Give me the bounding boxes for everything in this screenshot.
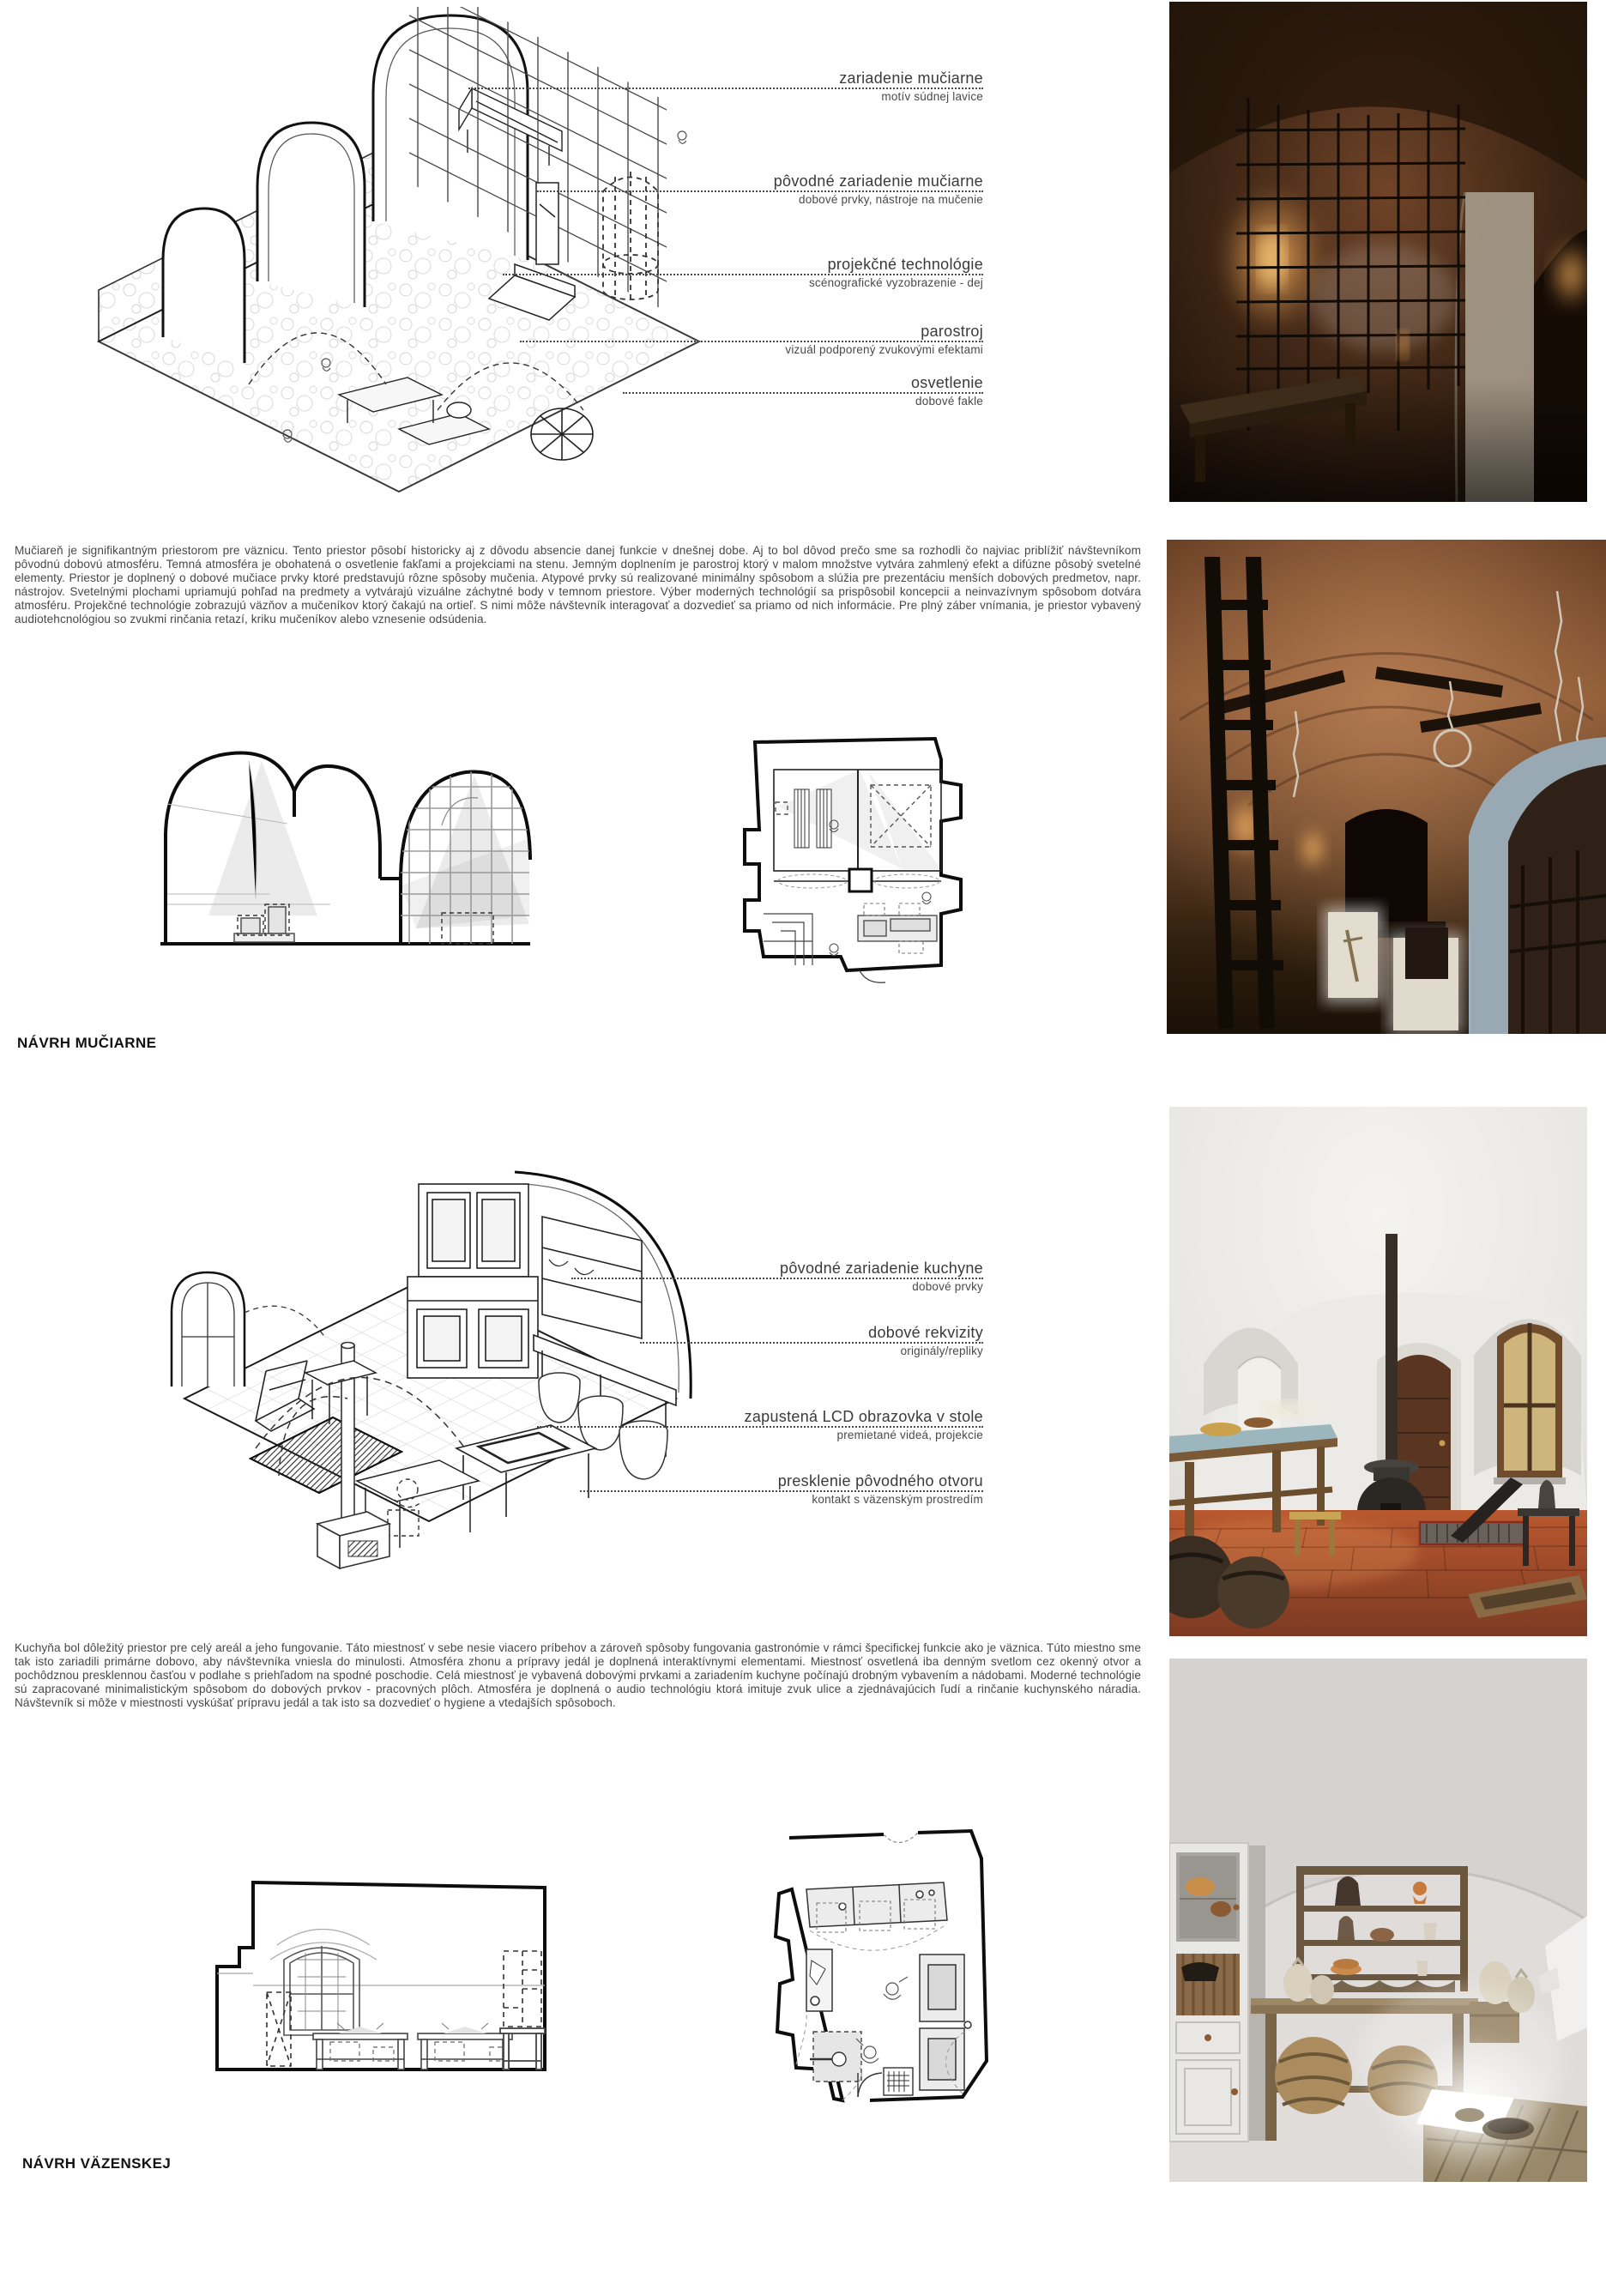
callout-leader-line <box>537 190 983 192</box>
callout-subtitle: vizuál podporený zvukovými efektami <box>520 344 983 356</box>
callout-title: pôvodné zariadenie mučiarne <box>537 173 983 190</box>
callout-leader-line <box>520 340 983 342</box>
callout-original-torture-equipment: pôvodné zariadenie mučiarne dobové prvky… <box>537 173 983 206</box>
callout-subtitle: dobové fakle <box>623 396 983 408</box>
callout-leader-line <box>503 273 983 275</box>
callout-leader-line <box>571 1277 983 1279</box>
callout-subtitle: premietané videá, projekcie <box>537 1429 983 1441</box>
callout-leader-line <box>537 1425 983 1428</box>
callout-steam-machine: parostroj vizuál podporený zvukovými efe… <box>520 323 983 356</box>
callout-title: dobové rekvizity <box>640 1325 983 1341</box>
callout-glazed-opening: presklenie pôvodného otvoru kontakt s vä… <box>580 1473 983 1506</box>
callout-subtitle: dobové prvky <box>571 1281 983 1293</box>
callout-title: projekčné technológie <box>503 257 983 273</box>
callout-subtitle: motív súdnej lavice <box>468 91 983 103</box>
section-label-muciaren: NÁVRH MUČIARNE <box>17 1035 156 1052</box>
render-photo-torture-corridor-nooses <box>1167 540 1606 1034</box>
callout-lighting: osvetlenie dobové fakle <box>623 375 983 408</box>
callout-leader-line <box>640 1341 983 1344</box>
section-label-vazenskej: NÁVRH VÄZENSKEJ <box>22 2155 171 2172</box>
callout-subtitle: scénografické vyzobrazenie - dej <box>503 277 983 289</box>
floor-plan-torture-chamber <box>731 716 988 991</box>
floor-plan-kitchen <box>757 1810 1010 2119</box>
callout-title: zariadenie mučiarne <box>468 70 983 87</box>
callout-leader-line <box>468 87 983 89</box>
callout-original-kitchen-equipment: pôvodné zariadenie kuchyne dobové prvky <box>571 1260 983 1293</box>
callout-title: osvetlenie <box>623 375 983 391</box>
callout-leader-line <box>580 1489 983 1492</box>
callout-projection-technology: projekčné technológie scénografické vyzo… <box>503 257 983 289</box>
callout-title: zapustená LCD obrazovka v stole <box>537 1409 983 1425</box>
description-kuchyna: Kuchyňa bol dôležitý priestor pre celý a… <box>15 1641 1141 1710</box>
section-drawing-kitchen <box>202 1864 583 2100</box>
callout-lcd-screen-table: zapustená LCD obrazovka v stole premieta… <box>537 1409 983 1441</box>
callout-torture-equipment: zariadenie mučiarne motív súdnej lavice <box>468 70 983 103</box>
render-photo-kitchen-stove-room <box>1169 1107 1587 1636</box>
isometric-drawing-kitchen <box>146 1088 699 1598</box>
callout-subtitle: originály/repliky <box>640 1345 983 1357</box>
callout-title: pôvodné zariadenie kuchyne <box>571 1260 983 1277</box>
callout-period-props: dobové rekvizity originály/repliky <box>640 1325 983 1357</box>
presentation-board: zariadenie mučiarne motív súdnej lavice … <box>0 0 1606 2296</box>
callout-subtitle: dobové prvky, nástroje na mučenie <box>537 194 983 206</box>
description-muciaren: Mučiareň je signifikantným priestorom pr… <box>15 544 1141 625</box>
render-photo-torture-chamber-cage <box>1169 2 1587 502</box>
render-photo-kitchen-shelves-screen <box>1169 1659 1587 2182</box>
callout-subtitle: kontakt s väzenským prostredím <box>580 1494 983 1506</box>
callout-title: presklenie pôvodného otvoru <box>580 1473 983 1489</box>
callout-leader-line <box>623 391 983 394</box>
section-drawing-torture-chamber <box>159 722 532 954</box>
callout-title: parostroj <box>520 323 983 340</box>
